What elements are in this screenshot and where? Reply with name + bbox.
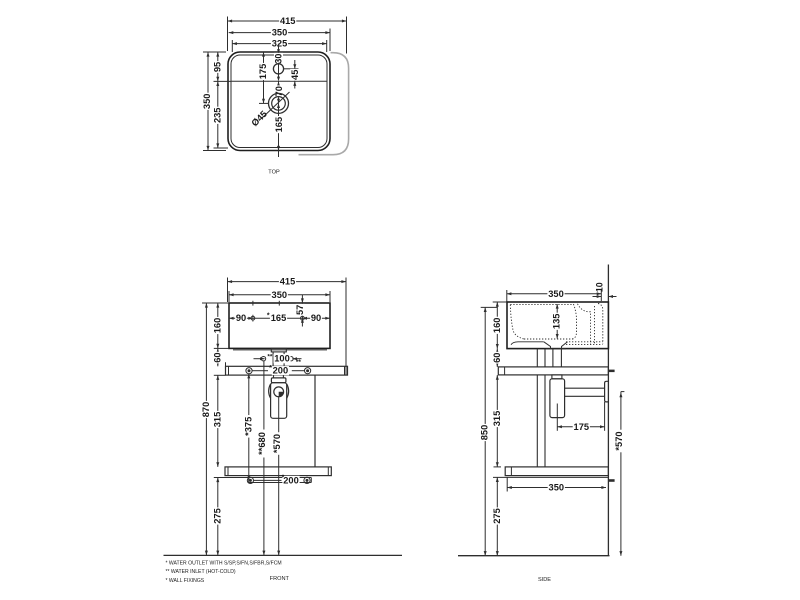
svg-text:160: 160 [492, 318, 502, 334]
svg-text:415: 415 [280, 277, 296, 287]
svg-text:165: 165 [271, 313, 287, 323]
svg-text:SIDE: SIDE [538, 577, 551, 583]
svg-text:315: 315 [492, 411, 502, 427]
svg-text:350: 350 [549, 483, 565, 493]
svg-text:60: 60 [492, 353, 502, 363]
svg-text:350: 350 [272, 28, 288, 38]
svg-text:200: 200 [283, 475, 299, 485]
svg-text:235: 235 [212, 108, 222, 124]
svg-text:**: ** [267, 353, 273, 360]
svg-text:350: 350 [272, 290, 288, 300]
svg-text:*570: *570 [272, 434, 282, 453]
svg-text:**680: **680 [257, 432, 267, 455]
svg-text:175: 175 [574, 422, 590, 432]
svg-text:57: 57 [295, 305, 305, 315]
svg-text:10: 10 [595, 282, 605, 292]
svg-text:TOP: TOP [268, 170, 280, 176]
svg-text:FRONT: FRONT [270, 576, 290, 582]
svg-text:*375: *375 [243, 417, 253, 436]
svg-text:350: 350 [548, 289, 564, 299]
svg-text:* WALL FIXINGS: * WALL FIXINGS [166, 578, 205, 584]
svg-text:30: 30 [274, 54, 284, 64]
svg-text:870: 870 [201, 402, 211, 418]
svg-text:95: 95 [212, 62, 222, 72]
svg-text:350: 350 [202, 94, 212, 110]
svg-text:200: 200 [273, 366, 289, 376]
svg-text:160: 160 [212, 318, 222, 334]
svg-text:90: 90 [236, 313, 246, 323]
svg-text:*570: *570 [614, 431, 624, 450]
svg-text:**: ** [296, 359, 302, 366]
svg-text:850: 850 [480, 425, 490, 441]
svg-text:*: * [269, 365, 272, 372]
svg-text:415: 415 [280, 16, 296, 26]
svg-text:135: 135 [552, 314, 562, 330]
svg-text:45: 45 [290, 70, 300, 80]
svg-text:*: * [267, 313, 270, 320]
svg-text:175: 175 [258, 64, 268, 80]
svg-text:315: 315 [212, 412, 222, 428]
svg-text:100: 100 [274, 354, 290, 364]
svg-text:** WATER INLET (HOT-COLD): ** WATER INLET (HOT-COLD) [166, 569, 236, 575]
svg-text:275: 275 [212, 508, 222, 524]
svg-text:90: 90 [311, 313, 321, 323]
svg-text:275: 275 [492, 508, 502, 524]
svg-text:*: * [282, 475, 285, 482]
svg-text:* WATER OUTLET WITH S/SP,S/FN: * WATER OUTLET WITH S/SP,S/FN,S/FBR,S/FC… [166, 561, 282, 567]
svg-text:60: 60 [212, 352, 222, 362]
svg-text:325: 325 [272, 39, 288, 49]
svg-text:165: 165 [274, 117, 284, 133]
